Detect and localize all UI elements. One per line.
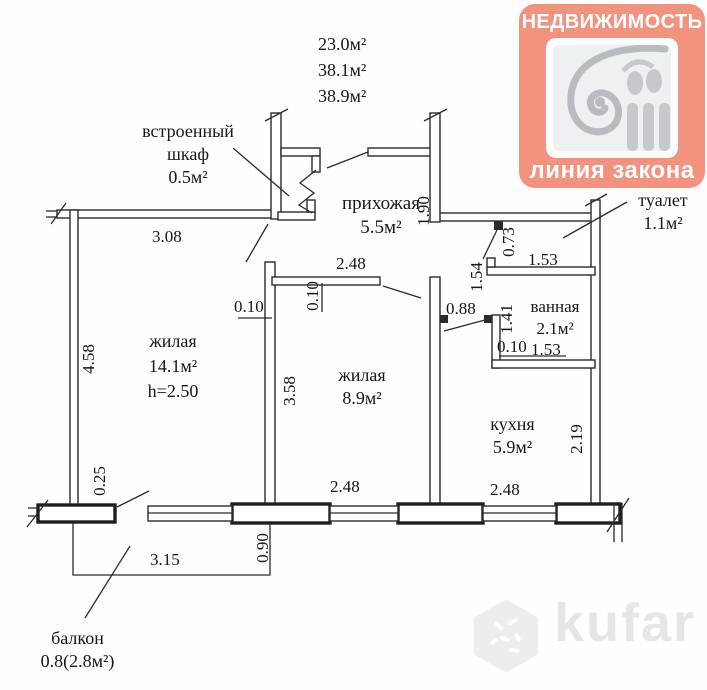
room-label-toilet: туалет 1.1м² [622,189,704,235]
dim-0-25: 0.25 [91,449,109,513]
dim-0-10-vert: 0.10 [304,264,322,328]
bathroom-name: ванная [515,296,595,318]
dim-1-53-bath: 1.53 [531,340,561,360]
dim-2-19: 2.19 [568,407,586,471]
kufar-watermark: kufar [468,598,703,678]
room-label-closet: встроенный шкаф 0.5м² [123,120,253,189]
living1-height: h=2.50 [118,379,228,404]
dim-0-90: 0.90 [254,516,272,580]
closet-name-2: шкаф [123,143,253,166]
dim-1-41: 1.41 [498,287,516,351]
toilet-area: 1.1м² [622,212,704,235]
room-label-living2: жилая 8.9м² [322,364,402,410]
agency-logo-title: НЕДВИЖИМОСТЬ [519,11,705,34]
closet-area: 0.5м² [123,166,253,189]
bathroom-area: 2.1м² [515,318,595,340]
dim-3-58: 3.58 [281,359,299,423]
balcony-area: 0.8(2.8м²) [15,650,140,673]
dim-1-90: 1.90 [415,179,433,243]
agency-logo-frame [546,38,678,158]
dim-2-48-left: 2.48 [330,477,360,497]
room-label-balcony: балкон 0.8(2.8м²) [15,627,140,673]
dim-1-54: 1.54 [468,245,486,309]
kitchen-area: 5.9м² [475,436,550,459]
floor-plan-page: 23.0м² 38.1м² 38.9м² встроенный шкаф 0.5… [0,0,707,690]
living2-area: 8.9м² [322,387,402,410]
room-label-bathroom: ванная 2.1м² [515,296,595,340]
closet-name: встроенный [123,120,253,143]
dim-3-15: 3.15 [150,550,180,570]
column-capital-icon [553,45,671,151]
balcony-name: балкон [15,627,140,650]
room-label-living1: жилая 14.1м² h=2.50 [118,329,228,404]
agency-logo-subtitle: линия закона [519,157,705,185]
kufar-hex-icon [468,598,544,674]
total-area-2: 38.1м² [318,57,366,83]
living1-name: жилая [118,329,228,354]
kufar-wordmark: kufar [554,592,696,654]
kitchen-name: кухня [475,413,550,436]
dim-3-08: 3.08 [152,227,182,247]
living2-name: жилая [322,364,402,387]
dim-2-48-right: 2.48 [490,480,520,500]
room-label-kitchen: кухня 5.9м² [475,413,550,459]
total-areas: 23.0м² 38.1м² 38.9м² [318,31,366,109]
dim-0-73: 0.73 [500,210,518,274]
agency-logo: НЕДВИЖИМОСТЬ линия закона [519,4,705,188]
living1-area: 14.1м² [118,354,228,379]
dim-2-48-hall: 2.48 [336,254,366,274]
toilet-name: туалет [622,189,704,212]
total-area-1: 23.0м² [318,31,366,57]
dim-4-58: 4.58 [80,327,98,391]
dim-1-53-toilet: 1.53 [528,250,558,270]
dim-0-10-wall: 0.10 [234,297,264,317]
total-area-3: 38.9м² [318,83,366,109]
